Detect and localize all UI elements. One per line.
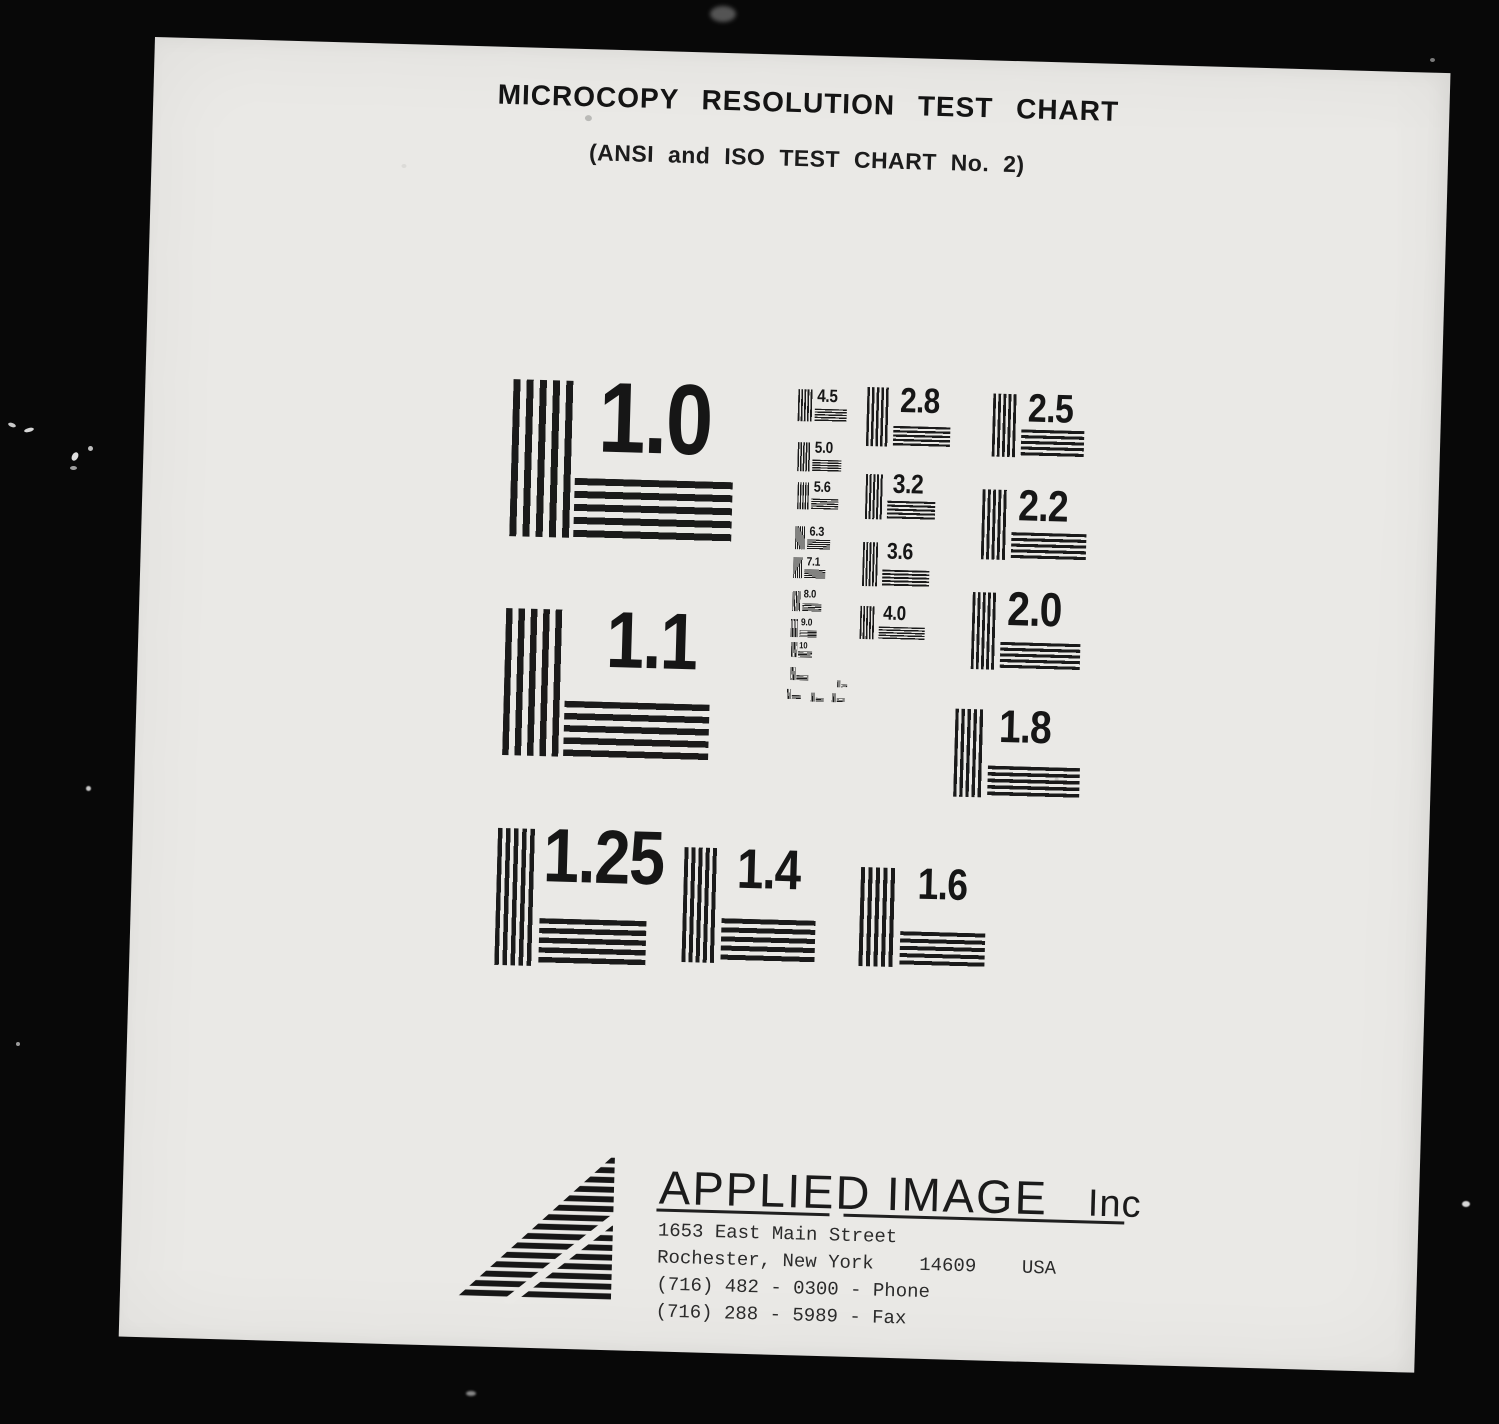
resolution-target-5-6: 5.6 xyxy=(797,482,839,510)
dust-speck xyxy=(70,466,77,470)
target-right-column: 2.0 xyxy=(1000,593,1082,672)
target-label: 5.6 xyxy=(814,483,831,494)
dust-speck xyxy=(88,446,93,451)
target-label: 6.3 xyxy=(809,526,824,536)
target-label: 1.25 xyxy=(543,829,665,887)
horizontal-bars xyxy=(893,426,951,449)
resolution-target-small xyxy=(787,689,801,699)
vertical-bars xyxy=(858,867,898,967)
resolution-target-small xyxy=(832,693,845,702)
dust-speck xyxy=(86,786,91,791)
vertical-bars xyxy=(795,526,806,549)
vertical-bars xyxy=(971,592,998,670)
target-right-column: 6.3 xyxy=(807,526,831,550)
dust-speck xyxy=(466,1391,476,1396)
target-label: 2.5 xyxy=(1028,395,1074,425)
vertical-bars xyxy=(981,489,1009,560)
resolution-target-2-8: 2.8 xyxy=(866,387,952,448)
resolution-target-6-3: 6.3 xyxy=(795,526,831,550)
target-label: 2.0 xyxy=(1007,593,1062,629)
resolution-target-2-0: 2.0 xyxy=(971,592,1082,672)
target-right-column: 10 xyxy=(798,642,812,657)
target-right-column: 4.5 xyxy=(815,390,848,423)
target-label: 5.0 xyxy=(815,443,833,455)
vertical-bars xyxy=(866,387,891,447)
page-subtitle: (ANSI and ISO TEST CHART No. 2) xyxy=(452,135,1162,182)
horizontal-bars xyxy=(802,603,821,612)
applied-image-logo-icon xyxy=(446,1142,650,1308)
target-right-column: 2.2 xyxy=(1011,490,1088,562)
horizontal-bars xyxy=(899,931,985,969)
resolution-target-1-0: 1.0 xyxy=(509,379,735,542)
target-right-column: 4.0 xyxy=(878,606,925,640)
test-chart-page: MICROCOPY RESOLUTION TEST CHART (ANSI an… xyxy=(119,37,1451,1373)
dust-speck xyxy=(1462,1201,1470,1207)
horizontal-bars xyxy=(987,766,1080,801)
vertical-bars xyxy=(811,693,815,702)
resolution-target-4-5: 4.5 xyxy=(798,389,848,422)
horizontal-bars xyxy=(837,698,845,702)
vertical-bars xyxy=(681,847,719,963)
target-right-column: 5.0 xyxy=(812,443,842,473)
horizontal-bars xyxy=(720,918,815,966)
resolution-target-2-2: 2.2 xyxy=(981,489,1088,562)
target-right-column: 1.25 xyxy=(538,829,686,970)
resolution-target-1-1: 1.1 xyxy=(502,608,713,761)
horizontal-bars xyxy=(792,695,801,699)
target-label: 2.8 xyxy=(900,388,940,414)
vertical-bars xyxy=(865,474,884,519)
target-label: 1.8 xyxy=(999,710,1052,745)
page-title: MICROCOPY RESOLUTION TEST CHART xyxy=(453,77,1164,129)
target-label: 9.0 xyxy=(801,619,813,627)
target-right-column xyxy=(841,680,847,687)
address-line-4: (716) 288 - 5989 - Fax xyxy=(655,1300,906,1329)
resolution-target-3-2: 3.2 xyxy=(865,474,936,521)
horizontal-bars xyxy=(812,460,841,473)
dust-speck xyxy=(8,422,17,428)
resolution-target-10: 10 xyxy=(791,642,812,658)
target-right-column: 1.4 xyxy=(720,848,817,966)
target-label: 4.5 xyxy=(817,390,838,404)
address-line-1: 1653 East Main Street xyxy=(658,1220,898,1249)
resolution-target-9-0: 9.0 xyxy=(790,619,816,638)
target-label: 1.4 xyxy=(736,849,800,891)
ink-smudge xyxy=(585,115,592,121)
target-label: 10 xyxy=(799,642,807,649)
vertical-bars xyxy=(798,389,814,421)
vertical-bars xyxy=(862,542,879,586)
horizontal-bars xyxy=(807,539,830,550)
target-right-column xyxy=(837,693,845,702)
horizontal-bars xyxy=(878,626,924,640)
target-right-column: 1.6 xyxy=(899,868,987,969)
resolution-target-3-6: 3.6 xyxy=(862,542,930,588)
vertical-bars xyxy=(797,482,810,509)
target-right-column: 3.2 xyxy=(887,475,936,521)
vertical-bars xyxy=(790,667,795,680)
horizontal-bars xyxy=(563,701,710,761)
resolution-target-1-6: 1.6 xyxy=(858,867,987,969)
target-right-column: 3.6 xyxy=(882,543,930,588)
resolution-target-1-8: 1.8 xyxy=(953,709,1081,800)
vertical-bars xyxy=(832,693,836,702)
target-label: 1.0 xyxy=(598,382,713,457)
vertical-bars xyxy=(793,557,803,578)
dust-speck xyxy=(70,451,80,462)
vertical-bars xyxy=(791,642,797,657)
dust-speck xyxy=(16,1042,20,1046)
target-right-column: 7.1 xyxy=(804,557,826,579)
company-name-suffix: Inc xyxy=(1087,1183,1142,1226)
resolution-target-4-0: 4.0 xyxy=(859,606,925,641)
target-label: 3.6 xyxy=(887,543,913,560)
target-label: 3.2 xyxy=(893,475,924,495)
resolution-target-1-25: 1.25 xyxy=(494,828,686,970)
horizontal-bars xyxy=(811,499,838,511)
resolution-target-8-0: 8.0 xyxy=(792,591,822,612)
target-right-column: 1.8 xyxy=(987,710,1081,801)
vertical-bars xyxy=(787,689,791,699)
horizontal-bars xyxy=(882,570,929,588)
horizontal-bars xyxy=(799,630,816,637)
horizontal-bars xyxy=(841,684,847,687)
dust-speck xyxy=(710,6,736,22)
ink-smudge xyxy=(401,164,406,168)
horizontal-bars xyxy=(796,675,808,680)
horizontal-bars xyxy=(798,651,812,657)
target-label: 2.2 xyxy=(1018,490,1069,523)
target-right-column: 1.0 xyxy=(573,381,735,542)
horizontal-bars xyxy=(1000,642,1081,672)
horizontal-bars xyxy=(816,698,824,702)
resolution-target-1-4: 1.4 xyxy=(681,847,817,966)
vertical-bars xyxy=(953,709,985,798)
target-right-column xyxy=(816,693,824,702)
target-label: 1.1 xyxy=(606,611,698,671)
target-right-column xyxy=(796,667,808,680)
vertical-bars xyxy=(509,379,573,538)
target-right-column: 8.0 xyxy=(802,591,822,612)
target-label: 1.6 xyxy=(917,869,968,902)
vertical-bars xyxy=(502,608,563,757)
target-right-column: 1.1 xyxy=(563,610,713,761)
target-label: 8.0 xyxy=(804,591,817,599)
vertical-bars xyxy=(797,442,811,471)
resolution-target-small xyxy=(790,667,808,680)
vertical-bars xyxy=(837,680,840,687)
target-right-column: 9.0 xyxy=(799,619,816,637)
resolution-target-7-1: 7.1 xyxy=(793,557,826,579)
vertical-bars xyxy=(992,394,1019,458)
scanned-image: { "page": { "title": "MICROCOPY RESOLUTI… xyxy=(0,0,1499,1424)
target-right-column: 5.6 xyxy=(811,483,839,511)
dust-speck xyxy=(24,427,35,433)
horizontal-bars xyxy=(1021,429,1085,459)
address-line-3: (716) 482 - 0300 - Phone xyxy=(656,1273,930,1303)
vertical-bars xyxy=(494,828,538,966)
scanner-background: MICROCOPY RESOLUTION TEST CHART (ANSI an… xyxy=(0,0,1499,1424)
vertical-bars xyxy=(859,606,875,639)
vertical-bars xyxy=(792,591,801,611)
horizontal-bars xyxy=(1011,532,1087,562)
target-label: 7.1 xyxy=(806,557,820,566)
resolution-target-5-0: 5.0 xyxy=(797,442,842,472)
resolution-target-small xyxy=(837,680,847,687)
target-label: 4.0 xyxy=(883,607,906,622)
horizontal-bars xyxy=(538,918,646,969)
vertical-bars xyxy=(790,619,797,637)
horizontal-bars xyxy=(887,501,936,521)
target-right-column: 2.8 xyxy=(893,388,952,449)
resolution-target-2-5: 2.5 xyxy=(992,394,1086,460)
horizontal-bars xyxy=(815,409,847,423)
target-right-column: 2.5 xyxy=(1021,394,1086,459)
resolution-target-small xyxy=(811,693,824,702)
horizontal-bars xyxy=(804,569,825,579)
target-right-column xyxy=(792,689,801,699)
dust-speck xyxy=(1430,58,1435,62)
horizontal-bars xyxy=(573,478,733,542)
